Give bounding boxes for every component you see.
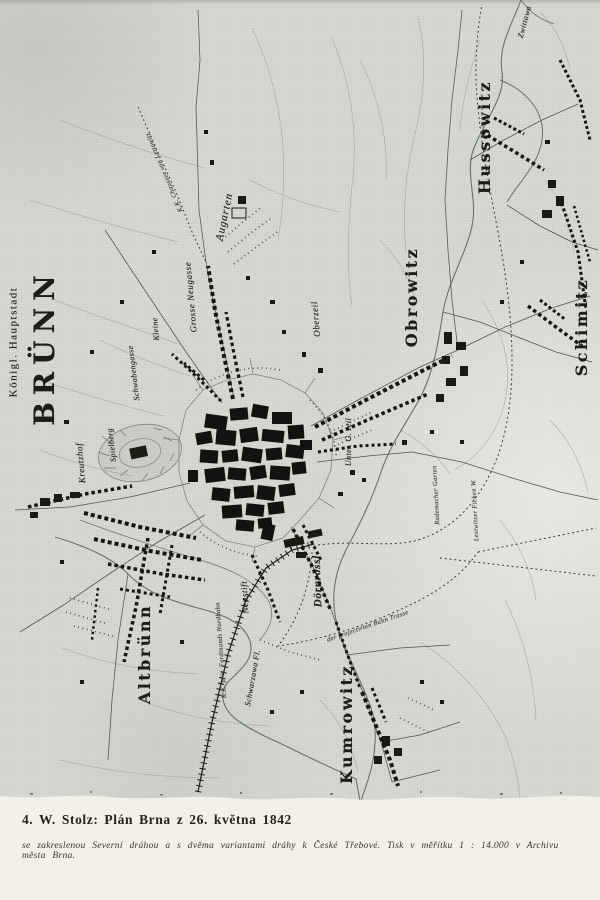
map-label-grosse-neugasse: Grosse Neugasse [183, 261, 198, 332]
map-label-doernroessl: Dörnrössl [312, 555, 325, 608]
map-label-nordbahn: K.K. priv. Ferdinands Nordbahn [215, 602, 228, 698]
map-label-bruenn: BRÜNN [31, 268, 59, 426]
map-label-hussowitz: Hussowitz [477, 80, 493, 194]
map-label-altbruenn: Altbrünn [137, 604, 153, 704]
map-label-kumrowitz: Kumrowitz [339, 664, 355, 784]
map-label-bahn-trasse: der projectirten Bahn Trasse [326, 610, 409, 644]
map-label-fichen-wald: Lestwitzer Fichen W. [471, 479, 481, 542]
caption-subtext: se zakreslenou Severní dráhou a s dvěma … [22, 841, 584, 861]
map-label-schwabengasse: Schwabengasse [127, 345, 142, 401]
map-label-schwarzawa-fl: Schwarzawa Fl. [244, 649, 262, 707]
map-label-schimitz: Schimitz [574, 278, 590, 377]
map-label-chaussee: K.K. Chaussee von Lettowitz [145, 131, 184, 212]
map-label-obrowitz: Obrowitz [404, 247, 420, 348]
book-page: { "colors": { "paper": "#f3f0e7", "scan_… [0, 0, 600, 900]
figure-caption: 4. W. Stolz: Plán Brna z 26. května 1842… [22, 812, 584, 861]
map-label-koenigl-hauptstadt: Königl. Hauptstadt [9, 287, 20, 398]
map-label-zwittawa: Zwittawa [517, 5, 533, 39]
map-label-kleine: Kleine [151, 317, 161, 341]
map-label-kreutzhof: Kreutzhof [75, 442, 88, 483]
map-label-neustift: Neustift [240, 580, 251, 613]
map-label-layer: Königl. HauptstadtBRÜNNHussowitzObrowitz… [0, 0, 600, 803]
map-label-spielberg: Spielberg [106, 428, 118, 463]
map-label-augarten: Augarten [215, 192, 236, 242]
map-scan: Königl. HauptstadtBRÜNNHussowitzObrowitz… [0, 0, 600, 803]
map-label-unter-zeil: Unter. G. zeil [345, 418, 353, 466]
map-label-garten: Rademacher Garten [432, 465, 442, 525]
caption-heading: 4. W. Stolz: Plán Brna z 26. května 1842 [22, 812, 584, 828]
map-label-oberzeil: Oberzeil [310, 301, 322, 337]
